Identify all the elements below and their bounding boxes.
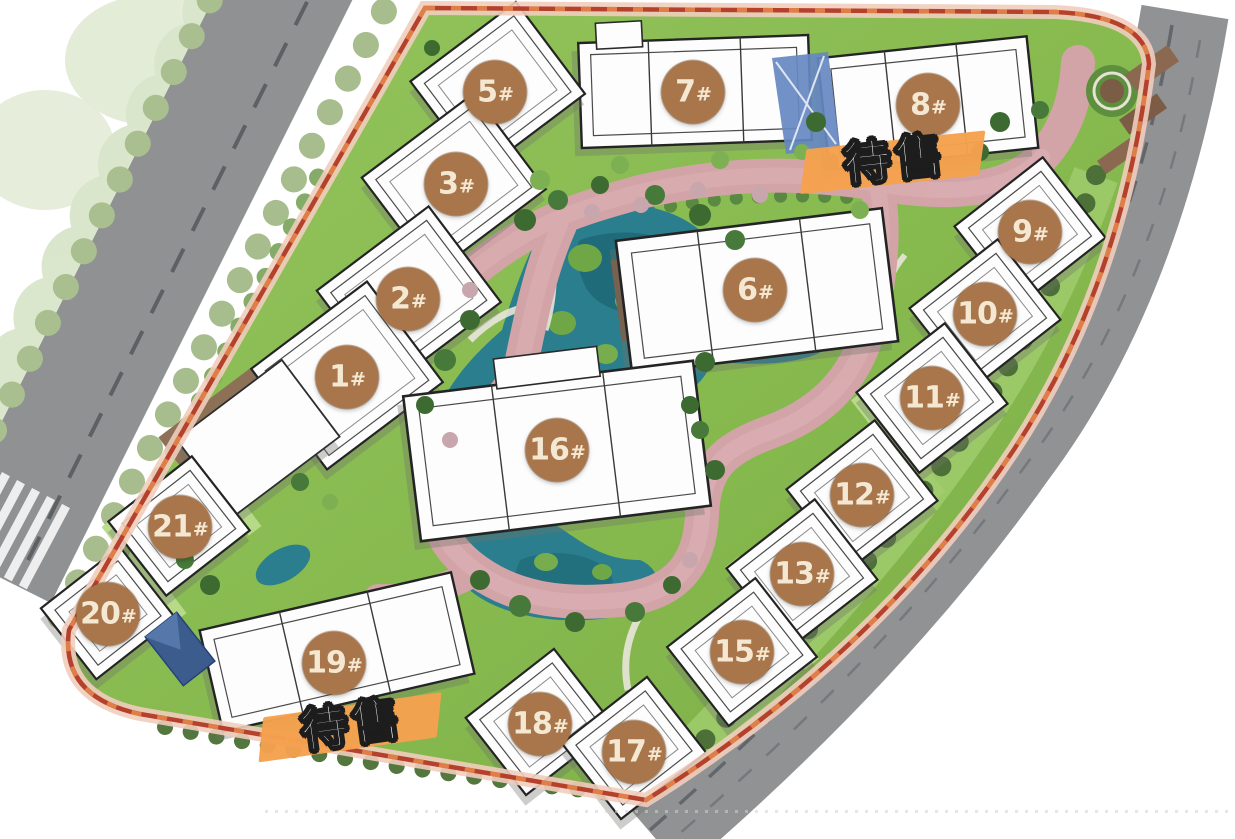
building-badge[interactable]: 2# bbox=[377, 268, 440, 331]
building-number: 3 bbox=[438, 169, 458, 199]
building-hash: # bbox=[815, 568, 830, 587]
building-number: 19 bbox=[306, 648, 346, 678]
building-badge[interactable]: 11# bbox=[901, 367, 964, 430]
building-hash: # bbox=[998, 308, 1013, 327]
building-badge[interactable]: 7# bbox=[662, 61, 725, 124]
building-hash: # bbox=[570, 444, 585, 463]
building-badge[interactable]: 9# bbox=[999, 201, 1062, 264]
bottom-dotted-edge bbox=[265, 810, 1235, 813]
for-sale-text: 待售 bbox=[296, 679, 409, 762]
building-badge[interactable]: 15# bbox=[711, 621, 774, 684]
building-number: 5 bbox=[477, 77, 497, 107]
building-7-annex bbox=[595, 21, 642, 49]
building-number: 8 bbox=[910, 90, 930, 120]
building-number: 2 bbox=[390, 284, 410, 314]
building-badge[interactable]: 3# bbox=[425, 153, 488, 216]
building-number: 12 bbox=[834, 480, 874, 510]
building-number: 10 bbox=[957, 299, 997, 329]
building-badge[interactable]: 13# bbox=[771, 543, 834, 606]
for-sale-text: 待售 bbox=[840, 115, 951, 194]
building-hash: # bbox=[758, 284, 773, 303]
building-number: 20 bbox=[80, 599, 120, 629]
building-badge[interactable]: 12# bbox=[831, 464, 894, 527]
building-hash: # bbox=[945, 392, 960, 411]
building-hash: # bbox=[553, 718, 568, 737]
site-plan-stage: 1# 2# 3# 5# 6# 7# 8# 9# 10# 1 bbox=[0, 0, 1235, 839]
building-hash: # bbox=[647, 746, 662, 765]
building-hash: # bbox=[875, 489, 890, 508]
building-hash: # bbox=[121, 608, 136, 627]
building-hash: # bbox=[931, 99, 946, 118]
building-badge[interactable]: 21# bbox=[149, 496, 212, 559]
building-hash: # bbox=[347, 657, 362, 676]
building-hash: # bbox=[696, 86, 711, 105]
building-number: 21 bbox=[152, 512, 192, 542]
building-number: 15 bbox=[714, 637, 754, 667]
building-hash: # bbox=[755, 646, 770, 665]
building-number: 13 bbox=[774, 559, 814, 589]
building-number: 7 bbox=[675, 77, 695, 107]
building-number: 11 bbox=[904, 383, 944, 413]
building-badge[interactable]: 10# bbox=[954, 283, 1017, 346]
building-number: 18 bbox=[512, 709, 552, 739]
site-plan-map bbox=[0, 0, 1235, 839]
building-number: 1 bbox=[329, 362, 349, 392]
building-number: 17 bbox=[606, 737, 646, 767]
building-badge[interactable]: 5# bbox=[464, 61, 527, 124]
building-badge[interactable]: 1# bbox=[316, 346, 379, 409]
building-number: 6 bbox=[737, 275, 757, 305]
building-hash: # bbox=[1033, 226, 1048, 245]
building-hash: # bbox=[459, 178, 474, 197]
building-hash: # bbox=[411, 293, 426, 312]
building-badge[interactable]: 20# bbox=[77, 583, 140, 646]
building-hash: # bbox=[193, 521, 208, 540]
building-number: 9 bbox=[1012, 217, 1032, 247]
building-hash: # bbox=[498, 86, 513, 105]
building-number: 16 bbox=[529, 435, 569, 465]
building-badge[interactable]: 18# bbox=[509, 693, 572, 756]
building-hash: # bbox=[350, 371, 365, 390]
building-badge[interactable]: 6# bbox=[724, 259, 787, 322]
building-badge[interactable]: 16# bbox=[526, 419, 589, 482]
building-badge[interactable]: 17# bbox=[603, 721, 666, 784]
